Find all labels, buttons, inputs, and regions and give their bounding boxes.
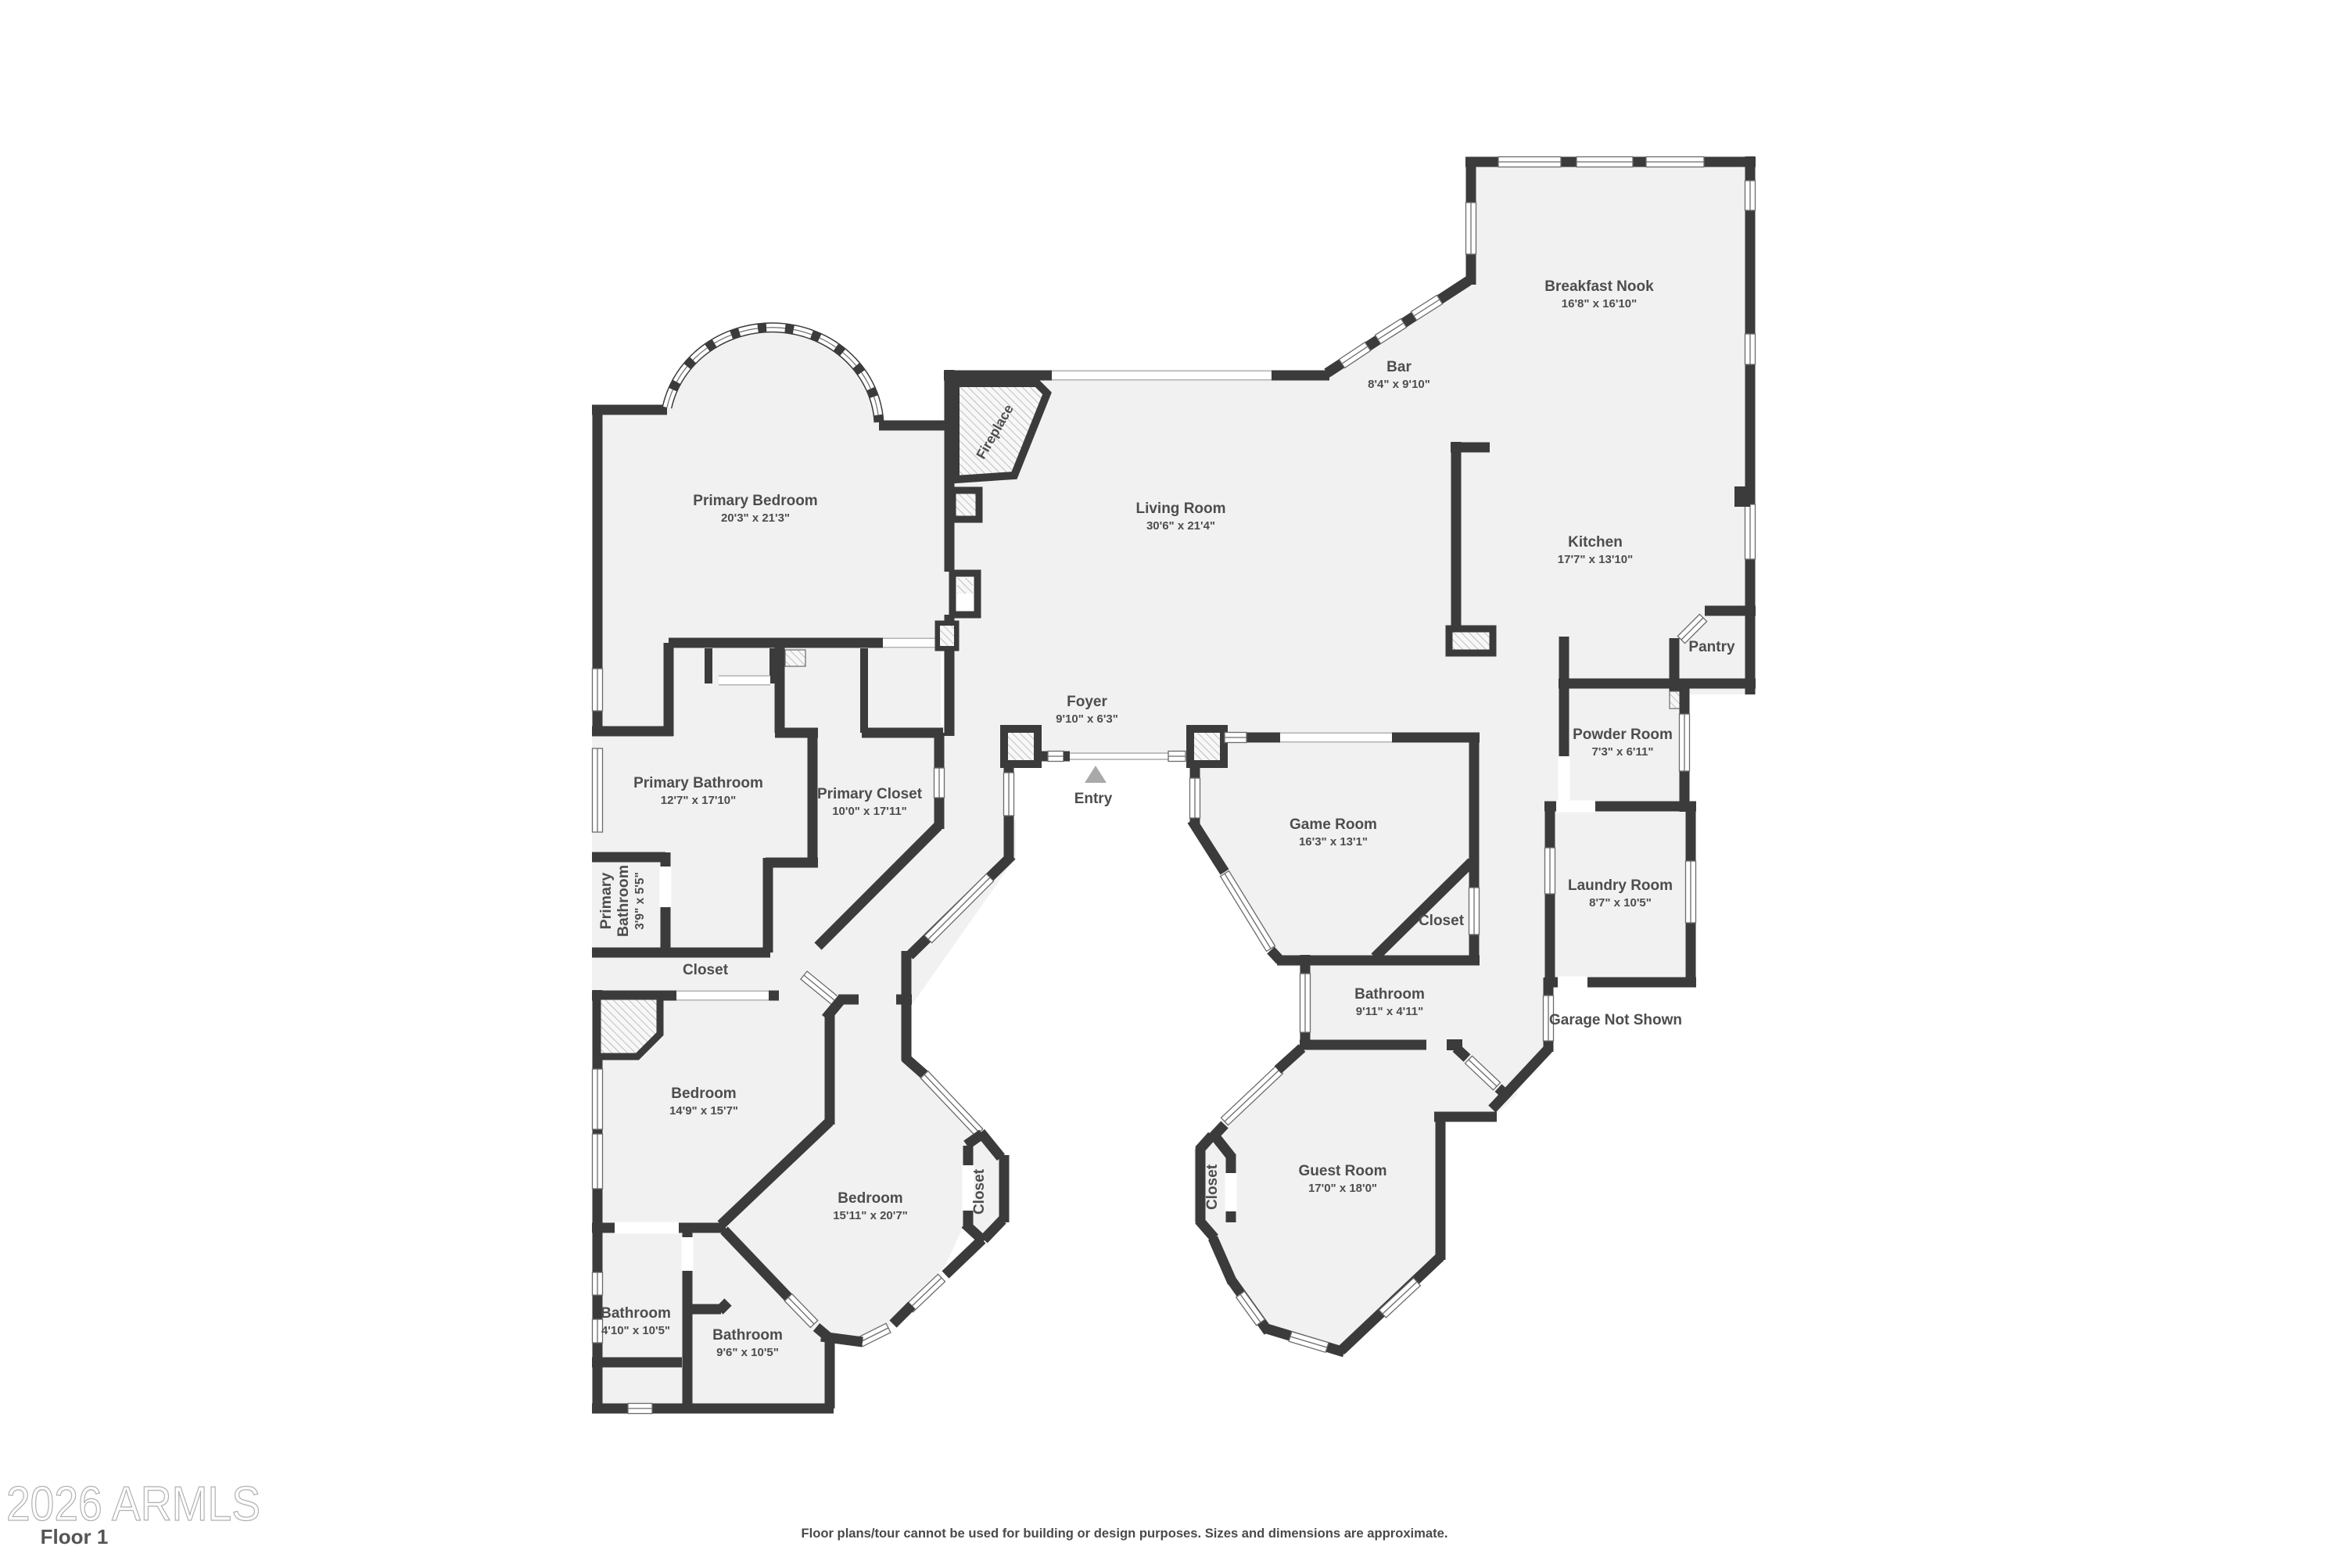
svg-text:Closet: Closet: [683, 962, 729, 978]
svg-text:Bathroom: Bathroom: [601, 1305, 671, 1322]
svg-text:Closet: Closet: [1419, 913, 1465, 929]
svg-text:Living Room: Living Room: [1135, 501, 1225, 517]
svg-text:Pantry: Pantry: [1688, 639, 1735, 655]
svg-text:Bedroom: Bedroom: [671, 1085, 736, 1102]
svg-text:16'3" x 13'1": 16'3" x 13'1": [1299, 835, 1368, 849]
svg-text:Bathroom: Bathroom: [615, 865, 632, 937]
svg-text:15'11" x 20'7": 15'11" x 20'7": [833, 1209, 908, 1222]
svg-text:20'3" x 21'3": 20'3" x 21'3": [721, 511, 790, 525]
svg-text:Laundry Room: Laundry Room: [1568, 877, 1673, 894]
svg-text:8'7" x 10'5": 8'7" x 10'5": [1589, 896, 1652, 910]
svg-text:Primary Bedroom: Primary Bedroom: [693, 493, 817, 509]
svg-text:8'4" x 9'10": 8'4" x 9'10": [1368, 378, 1430, 391]
svg-text:Garage Not Shown: Garage Not Shown: [1549, 1012, 1682, 1028]
svg-text:Foyer: Foyer: [1067, 694, 1107, 710]
svg-text:30'6" x 21'4": 30'6" x 21'4": [1146, 519, 1215, 533]
svg-text:Game Room: Game Room: [1290, 816, 1377, 833]
svg-text:10'0" x 17'11": 10'0" x 17'11": [832, 805, 907, 818]
svg-text:Guest Room: Guest Room: [1299, 1163, 1387, 1179]
svg-text:Primary: Primary: [597, 873, 615, 930]
svg-text:3'9" x 5'5": 3'9" x 5'5": [633, 872, 647, 930]
svg-text:12'7" x 17'10": 12'7" x 17'10": [661, 794, 736, 807]
svg-text:Bathroom: Bathroom: [1354, 986, 1425, 1003]
svg-text:9'10" x 6'3": 9'10" x 6'3": [1056, 712, 1118, 726]
svg-text:Breakfast Nook: Breakfast Nook: [1544, 278, 1654, 295]
svg-text:Bar: Bar: [1386, 359, 1412, 375]
svg-text:Kitchen: Kitchen: [1568, 534, 1623, 551]
svg-text:Powder Room: Powder Room: [1573, 727, 1673, 743]
svg-text:16'8" x 16'10": 16'8" x 16'10": [1562, 297, 1637, 310]
svg-text:Bathroom: Bathroom: [712, 1327, 783, 1344]
svg-text:9'6" x 10'5": 9'6" x 10'5": [716, 1346, 779, 1359]
svg-text:Closet: Closet: [1204, 1164, 1221, 1210]
svg-text:17'0" x 18'0": 17'0" x 18'0": [1308, 1182, 1377, 1195]
svg-text:Floor plans/tour cannot be use: Floor plans/tour cannot be used for buil…: [801, 1526, 1447, 1541]
svg-text:2026 ARMLS: 2026 ARMLS: [6, 1477, 260, 1531]
svg-text:Bedroom: Bedroom: [838, 1190, 902, 1207]
svg-text:Primary Closet: Primary Closet: [817, 786, 923, 802]
svg-text:Primary Bathroom: Primary Bathroom: [633, 775, 763, 791]
svg-text:7'3" x 6'11": 7'3" x 6'11": [1592, 745, 1654, 759]
svg-text:Entry: Entry: [1074, 791, 1113, 807]
svg-text:9'11" x 4'11": 9'11" x 4'11": [1356, 1005, 1423, 1018]
svg-text:Closet: Closet: [971, 1168, 988, 1215]
svg-text:17'7" x 13'10": 17'7" x 13'10": [1558, 553, 1633, 566]
svg-text:Floor 1: Floor 1: [41, 1525, 109, 1548]
svg-text:4'10" x 10'5": 4'10" x 10'5": [601, 1324, 670, 1337]
svg-text:14'9" x 15'7": 14'9" x 15'7": [669, 1104, 738, 1118]
